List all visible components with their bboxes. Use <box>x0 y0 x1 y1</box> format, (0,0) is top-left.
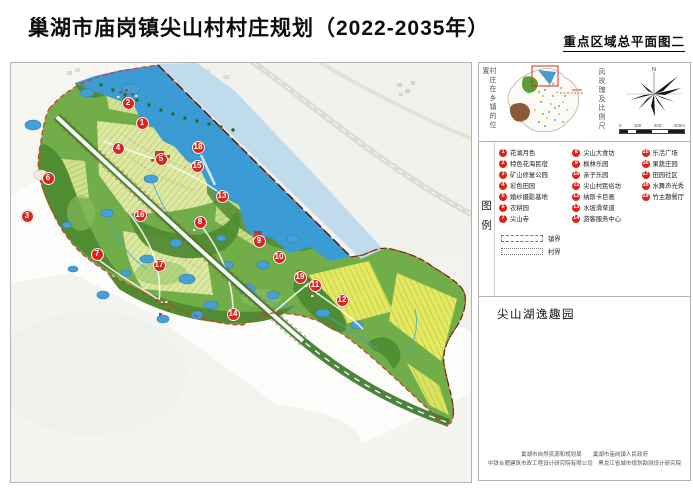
township-locator-map <box>494 65 594 139</box>
sheet-subtitle: 重点区域总平面图二 <box>563 31 685 52</box>
legend-item-10: 10亲子乐园 <box>572 169 641 180</box>
legend-item-13: 13水坡滑草道 <box>572 202 641 213</box>
credits-line-2: 中铁合肥建筑市政工程设计研究院有限公司 黑龙江省城市规划勘测设计研究院 <box>487 460 681 468</box>
scale-tick: 400m <box>674 123 685 129</box>
notes-section: 尖山湖逸趣园 巢湖市自然资源和规划局 巢湖市庙岗镇人民政府 中铁合肥建筑市政工程… <box>479 297 690 481</box>
legend-number-badge: 5 <box>499 193 507 201</box>
village-boundary-label: 村界 <box>548 247 561 256</box>
legend-number-badge: 18 <box>642 182 650 190</box>
map-marker-2: 2 <box>122 97 135 110</box>
legend-item-label: 果蔬庄园 <box>653 159 678 168</box>
master-plan-map: 12345678910111213141516171819 <box>10 62 472 483</box>
legend-item-2: 2特色花海民宿 <box>499 158 572 169</box>
map-marker-4: 4 <box>112 142 125 155</box>
legend-item-14: 14游客服务中心 <box>572 213 641 224</box>
credits-line-1: 巢湖市自然资源和规划局 巢湖市庙岗镇人民政府 <box>487 451 681 459</box>
town-boundary-label: 镇界 <box>548 234 561 243</box>
legend-column-3: 15乐活广场16果蔬庄园17田园社区18水舞声光秀19竹主题餐厅 <box>642 147 690 224</box>
legend-number-badge: 8 <box>572 149 580 157</box>
legend-title-column: 图例 <box>479 142 495 296</box>
legend-item-label: 尖山村民俗坊 <box>583 181 621 190</box>
map-marker-3: 3 <box>21 210 34 223</box>
town-boundary-swatch <box>501 235 543 242</box>
legend-item-15: 15乐活广场 <box>642 147 690 158</box>
legend-number-badge: 10 <box>572 171 580 179</box>
village-boundary-row: 村界 <box>501 245 561 258</box>
map-marker-9: 9 <box>253 235 266 248</box>
scale-tick: 200 <box>654 123 662 129</box>
scale-tick: 0 <box>619 123 622 129</box>
legend-item-7: 7尖山寺 <box>499 213 572 224</box>
legend-title: 图例 <box>479 200 494 239</box>
village-boundary-swatch <box>501 248 543 255</box>
legend-item-6: 6农耕园 <box>499 202 572 213</box>
legend-item-9: 9枫林乐园 <box>572 158 641 169</box>
wind-rose: N <box>617 64 687 122</box>
map-marker-5: 5 <box>155 153 168 166</box>
legend-item-label: 农耕园 <box>510 203 529 212</box>
legend-item-label: 花湖月色 <box>510 148 535 157</box>
legend-item-3: 3矿山修复公园 <box>499 169 572 180</box>
plan-map-drawing <box>11 63 471 482</box>
legend-item-17: 17田园社区 <box>642 169 690 180</box>
legend-item-18: 18水舞声光秀 <box>642 180 690 191</box>
legend-number-badge: 12 <box>572 193 580 201</box>
park-name-title: 尖山湖逸趣园 <box>497 306 575 322</box>
map-sidebar: 村庄在乡镇的位置 <box>478 62 691 481</box>
legend-item-label: 亲子乐园 <box>583 170 608 179</box>
legend-grid: 1花湖月色2特色花海民宿3矿山修复公园4彩色田园5婚纱摄影基地6农耕园7尖山寺 … <box>499 147 689 224</box>
legend-number-badge: 7 <box>499 215 507 223</box>
legend-item-label: 尖山寺 <box>510 214 529 223</box>
legend-number-badge: 3 <box>499 171 507 179</box>
legend-column-2: 8尖山大食坊9枫林乐园10亲子乐园11尖山村民俗坊12纳斯卡巨画13水坡滑草道1… <box>572 147 641 224</box>
map-marker-7: 7 <box>91 248 104 261</box>
town-boundary-row: 镇界 <box>501 232 561 245</box>
legend-item-label: 水坡滑草道 <box>583 203 614 212</box>
credits-footer: 巢湖市自然资源和规划局 巢湖市庙岗镇人民政府 中铁合肥建筑市政工程设计研究院有限… <box>479 451 690 469</box>
legend-item-1: 1花湖月色 <box>499 147 572 158</box>
legend-number-badge: 15 <box>642 149 650 157</box>
legend-number-badge: 9 <box>572 160 580 168</box>
locator-section: 村庄在乡镇的位置 <box>479 63 690 142</box>
legend-number-badge: 11 <box>572 182 580 190</box>
map-marker-11: 11 <box>309 279 322 292</box>
locator-brown-area <box>510 103 530 122</box>
windrose-label: 风玫瑰及比例尺 <box>598 68 605 132</box>
legend-number-badge: 13 <box>572 204 580 212</box>
map-marker-1: 1 <box>136 117 149 130</box>
legend-item-label: 水舞声光秀 <box>653 181 684 190</box>
plan-sheet: 巢湖市庙岗镇尖山村村庄规划（2022-2035年） 重点区域总平面图二 <box>0 0 693 490</box>
map-marker-17: 17 <box>153 259 166 272</box>
legend-item-label: 婚纱摄影基地 <box>510 192 548 201</box>
legend-item-8: 8尖山大食坊 <box>572 147 641 158</box>
legend-item-16: 16果蔬庄园 <box>642 158 690 169</box>
scale-bar: 0 100 200 400m <box>619 123 685 134</box>
map-marker-12: 12 <box>336 294 349 307</box>
legend-item-19: 19竹主题餐厅 <box>642 191 690 202</box>
legend-number-badge: 19 <box>642 193 650 201</box>
map-marker-18: 18 <box>192 141 205 154</box>
legend-number-badge: 17 <box>642 171 650 179</box>
legend-item-label: 尖山大食坊 <box>583 148 614 157</box>
map-marker-10: 10 <box>273 251 286 264</box>
map-marker-13: 13 <box>216 190 229 203</box>
legend-item-label: 特色花海民宿 <box>510 159 548 168</box>
legend-item-label: 乐活广场 <box>653 148 678 157</box>
legend-item-label: 田园社区 <box>653 170 678 179</box>
legend-column-1: 1花湖月色2特色花海民宿3矿山修复公园4彩色田园5婚纱摄影基地6农耕园7尖山寺 <box>499 147 572 224</box>
scale-tick: 100 <box>634 123 642 129</box>
legend-item-12: 12纳斯卡巨画 <box>572 191 641 202</box>
legend-item-label: 游客服务中心 <box>583 214 621 223</box>
legend-number-badge: 6 <box>499 204 507 212</box>
boundary-legend: 镇界 村界 <box>501 232 561 258</box>
legend-number-badge: 16 <box>642 160 650 168</box>
legend-item-11: 11尖山村民俗坊 <box>572 180 641 191</box>
map-marker-14: 14 <box>227 308 240 321</box>
map-marker-16: 16 <box>134 209 147 222</box>
legend-item-label: 枫林乐园 <box>583 159 608 168</box>
scale-bar-segments <box>619 129 685 134</box>
legend-item-4: 4彩色田园 <box>499 180 572 191</box>
legend-number-badge: 14 <box>572 215 580 223</box>
legend-item-label: 彩色田园 <box>510 181 535 190</box>
legend-section: 图例 1花湖月色2特色花海民宿3矿山修复公园4彩色田园5婚纱摄影基地6农耕园7尖… <box>479 142 690 297</box>
legend-number-badge: 1 <box>499 149 507 157</box>
map-marker-8: 8 <box>194 216 207 229</box>
map-marker-19: 19 <box>294 271 307 284</box>
legend-number-badge: 2 <box>499 160 507 168</box>
map-marker-6: 6 <box>42 172 55 185</box>
legend-item-5: 5婚纱摄影基地 <box>499 191 572 202</box>
legend-item-label: 纳斯卡巨画 <box>583 192 614 201</box>
legend-number-badge: 4 <box>499 182 507 190</box>
legend-item-label: 矿山修复公园 <box>510 170 548 179</box>
legend-item-label: 竹主题餐厅 <box>653 192 684 201</box>
page-title: 巢湖市庙岗镇尖山村村庄规划（2022-2035年） <box>28 12 489 42</box>
map-marker-15: 15 <box>191 160 204 173</box>
